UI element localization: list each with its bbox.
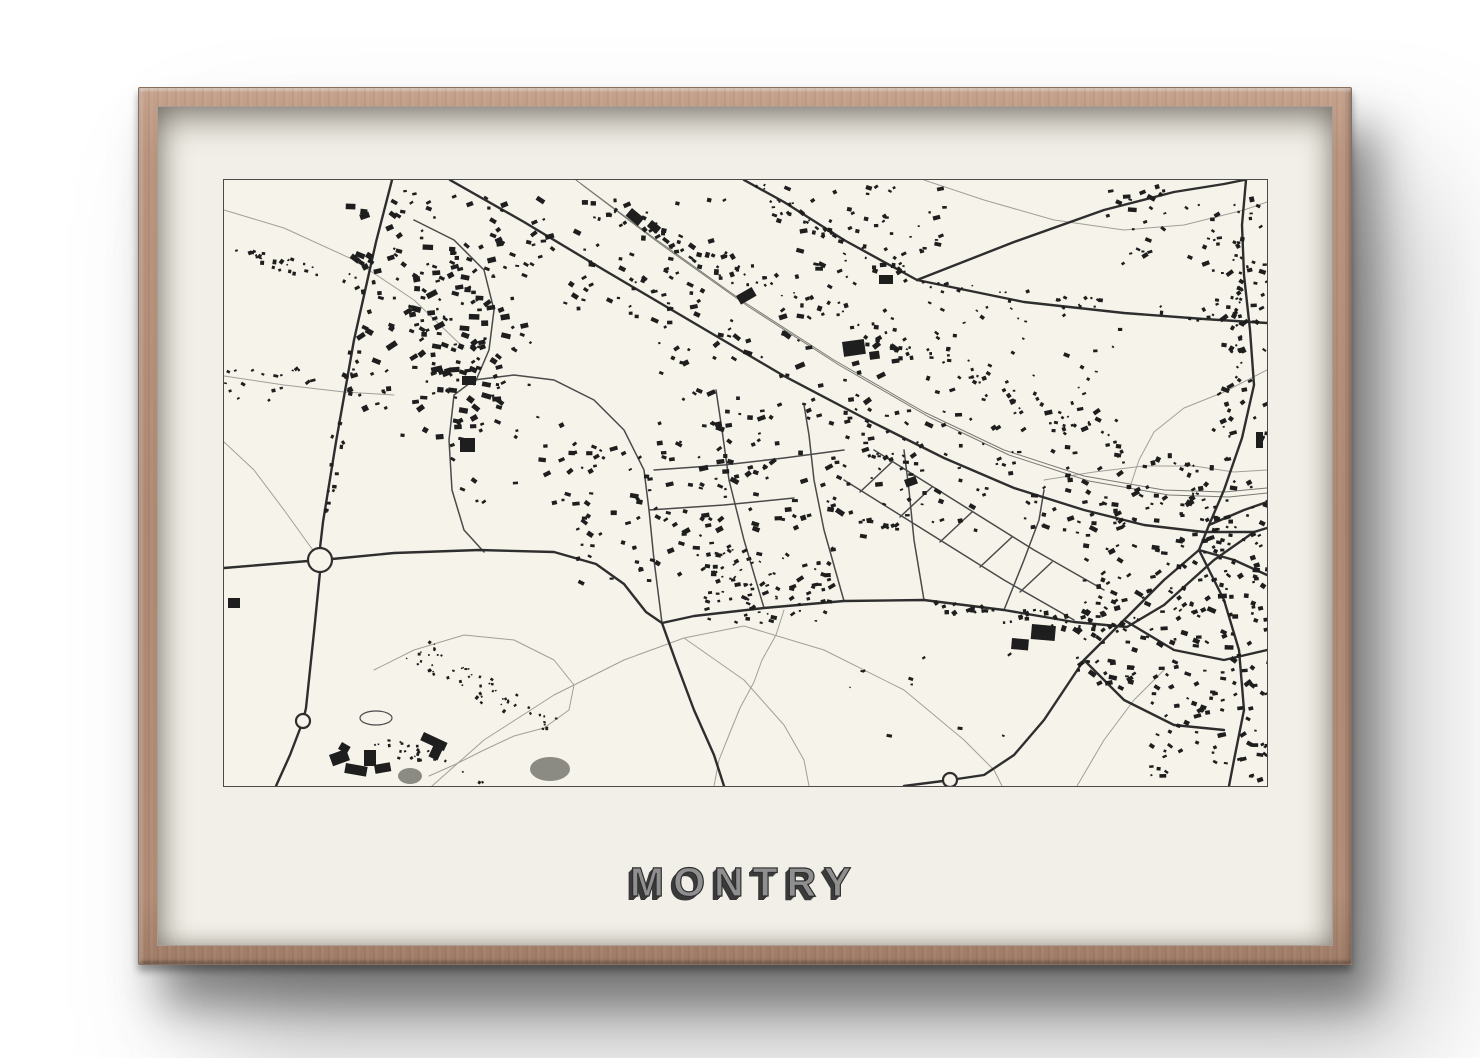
- picture-frame: MONTRY: [138, 87, 1352, 965]
- street-map: [224, 180, 1267, 786]
- framed-map-photo: MONTRY: [0, 0, 1480, 1058]
- map-title: MONTRY: [158, 859, 1332, 906]
- mat-board: MONTRY: [157, 106, 1333, 946]
- map-print: [223, 179, 1268, 787]
